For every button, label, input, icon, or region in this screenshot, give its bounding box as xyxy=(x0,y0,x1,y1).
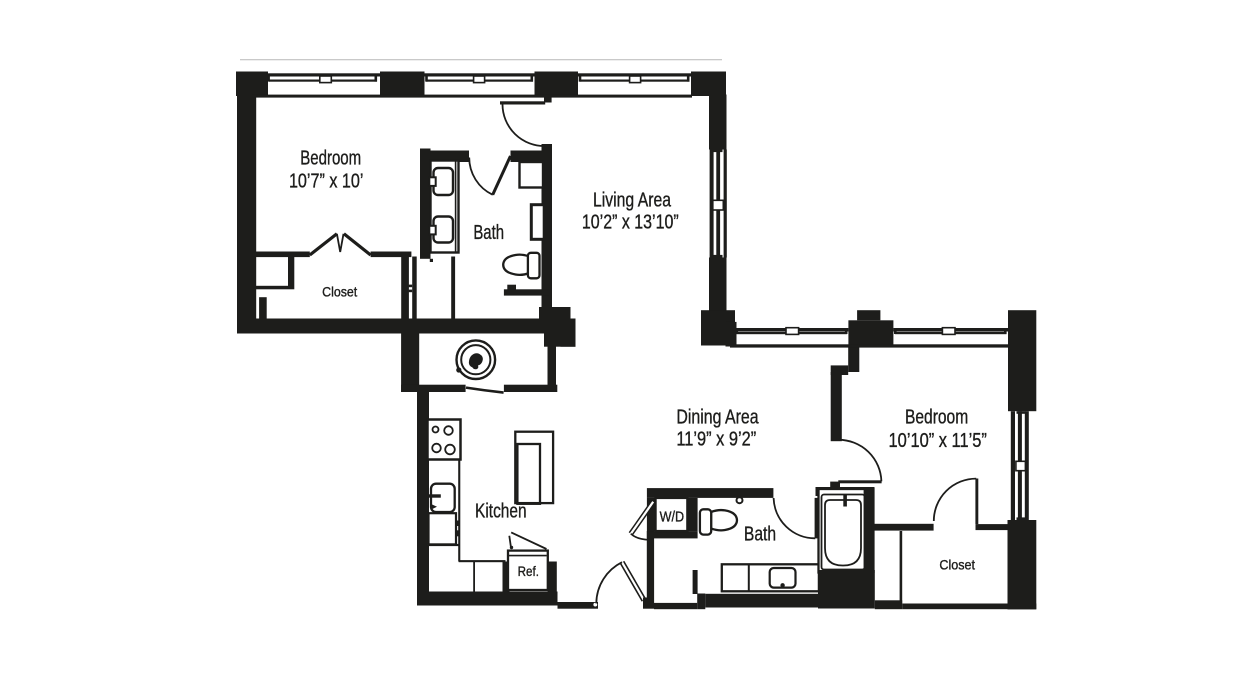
svg-text:Ref.: Ref. xyxy=(518,564,539,579)
svg-text:Bath: Bath xyxy=(473,222,504,244)
svg-text:10’10” x 11’5”: 10’10” x 11’5” xyxy=(889,430,987,452)
svg-text:Dining Area: Dining Area xyxy=(676,407,759,429)
svg-text:Closet: Closet xyxy=(939,557,975,572)
svg-text:Living Area: Living Area xyxy=(593,190,672,212)
svg-text:11’9” x 9’2”: 11’9” x 9’2” xyxy=(676,429,756,451)
svg-text:Bedroom: Bedroom xyxy=(905,407,968,429)
svg-text:Closet: Closet xyxy=(322,284,357,299)
svg-text:10’2” x 13’10”: 10’2” x 13’10” xyxy=(582,211,679,233)
svg-text:10’7” x 10’: 10’7” x 10’ xyxy=(289,170,364,192)
svg-text:Bedroom: Bedroom xyxy=(300,147,361,169)
svg-text:Kitchen: Kitchen xyxy=(475,501,527,523)
svg-text:Bath: Bath xyxy=(744,524,776,546)
svg-text:W/D: W/D xyxy=(660,510,685,526)
